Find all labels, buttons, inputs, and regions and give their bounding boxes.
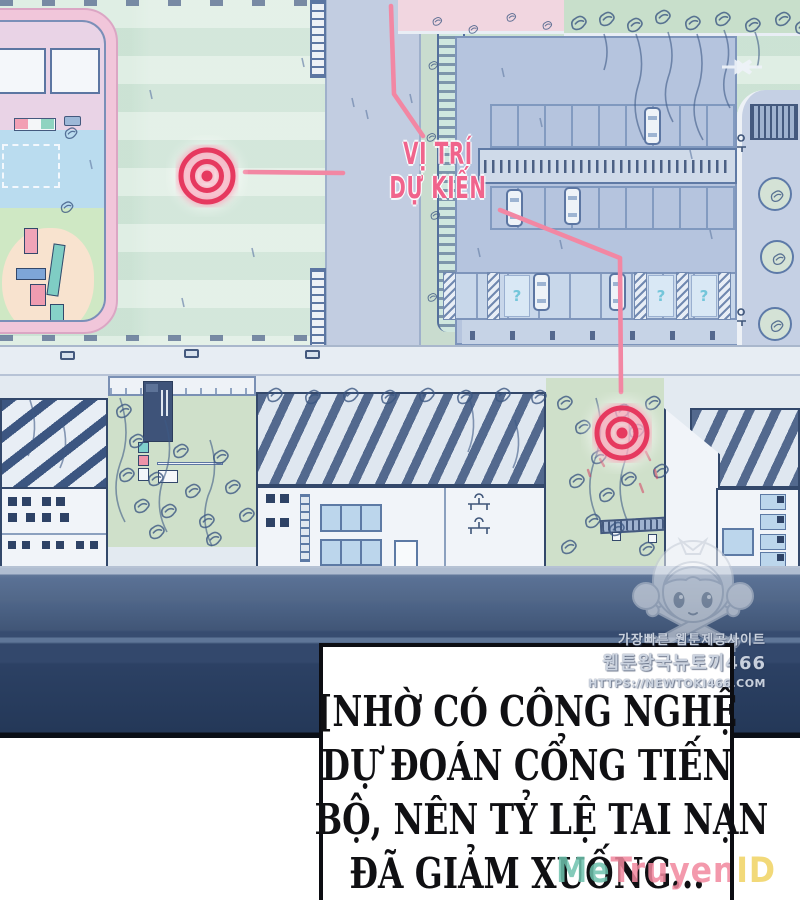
korean-watermark-line1: 가장빠른 웹툰제공사이트 [566, 631, 766, 651]
map-art-overlay [0, 0, 800, 576]
site-watermark-truyen: Truyen [611, 851, 737, 891]
korean-watermark-line2: 웹툰왕국뉴토끼466 [566, 651, 766, 676]
location-label-line2: DỰ KIẾN [389, 172, 486, 206]
comic-page: ??? VỊ TRÍ DỰ KIẾN 가장빠른 웹툰제공사이트 웹툰왕국뉴토끼4… [0, 0, 800, 900]
caption-box-border [730, 643, 734, 900]
city-map-panel: ??? [0, 0, 800, 576]
location-label: VỊ TRÍ DỰ KIẾN [389, 138, 486, 206]
site-watermark-me: Me [556, 851, 611, 891]
caption-line-3: BỘ, NÊN TỶ LỆ TAI NẠN [314, 793, 739, 847]
target-marker-2 [588, 399, 656, 467]
leader-line-target2 [500, 210, 621, 392]
site-watermark-id: ID [736, 851, 776, 891]
site-watermark: MeTruyenID [556, 851, 776, 891]
leader-line-label [391, 6, 423, 136]
target-marker-1 [173, 142, 241, 210]
caption-line-2: DỰ ĐOÁN CỔNG TIẾN [314, 739, 739, 793]
korean-watermark-line3: HTTPS://NEWTOKI466.COM [566, 676, 766, 692]
location-label-line1: VỊ TRÍ [389, 138, 486, 172]
korean-watermark: 가장빠른 웹툰제공사이트 웹툰왕국뉴토끼466 HTTPS://NEWTOKI4… [566, 631, 766, 692]
leader-line-target1 [245, 172, 343, 173]
caption-line-1: [NHỜ CÓ CÔNG NGHỆ [314, 685, 739, 739]
